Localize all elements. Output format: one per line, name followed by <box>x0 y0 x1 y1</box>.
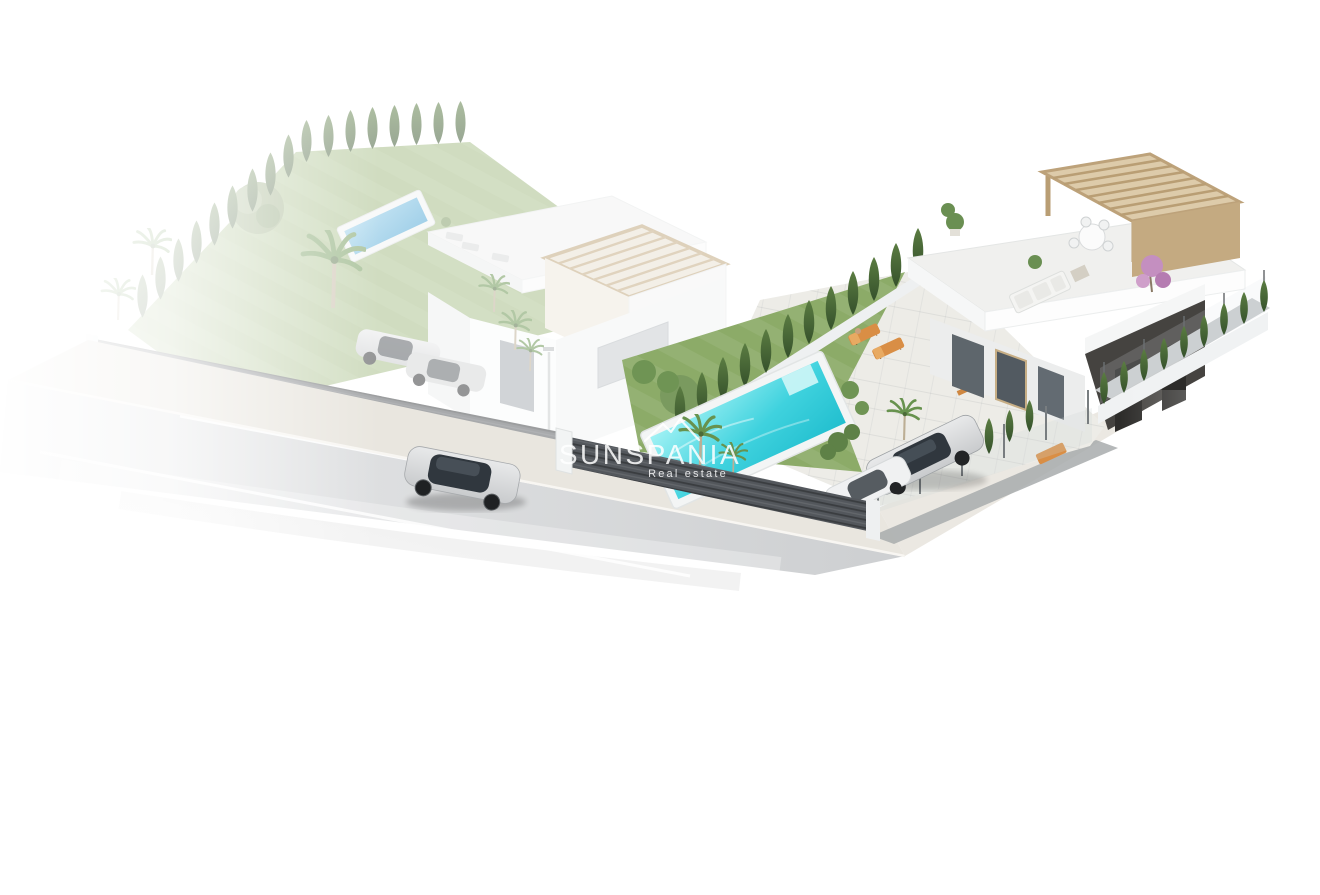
potted-plant <box>1028 255 1042 269</box>
watermark-title: SUNSPANIA <box>559 439 741 470</box>
wood-slat-door <box>996 350 1026 410</box>
right-fade <box>1120 390 1320 580</box>
render-canvas: SUNSPANIA Real estate <box>0 0 1320 895</box>
watermark-subtitle: Real estate <box>648 468 728 480</box>
parapet-plant <box>941 203 955 217</box>
roof-plant <box>441 217 451 227</box>
fence-post-white <box>866 498 880 541</box>
